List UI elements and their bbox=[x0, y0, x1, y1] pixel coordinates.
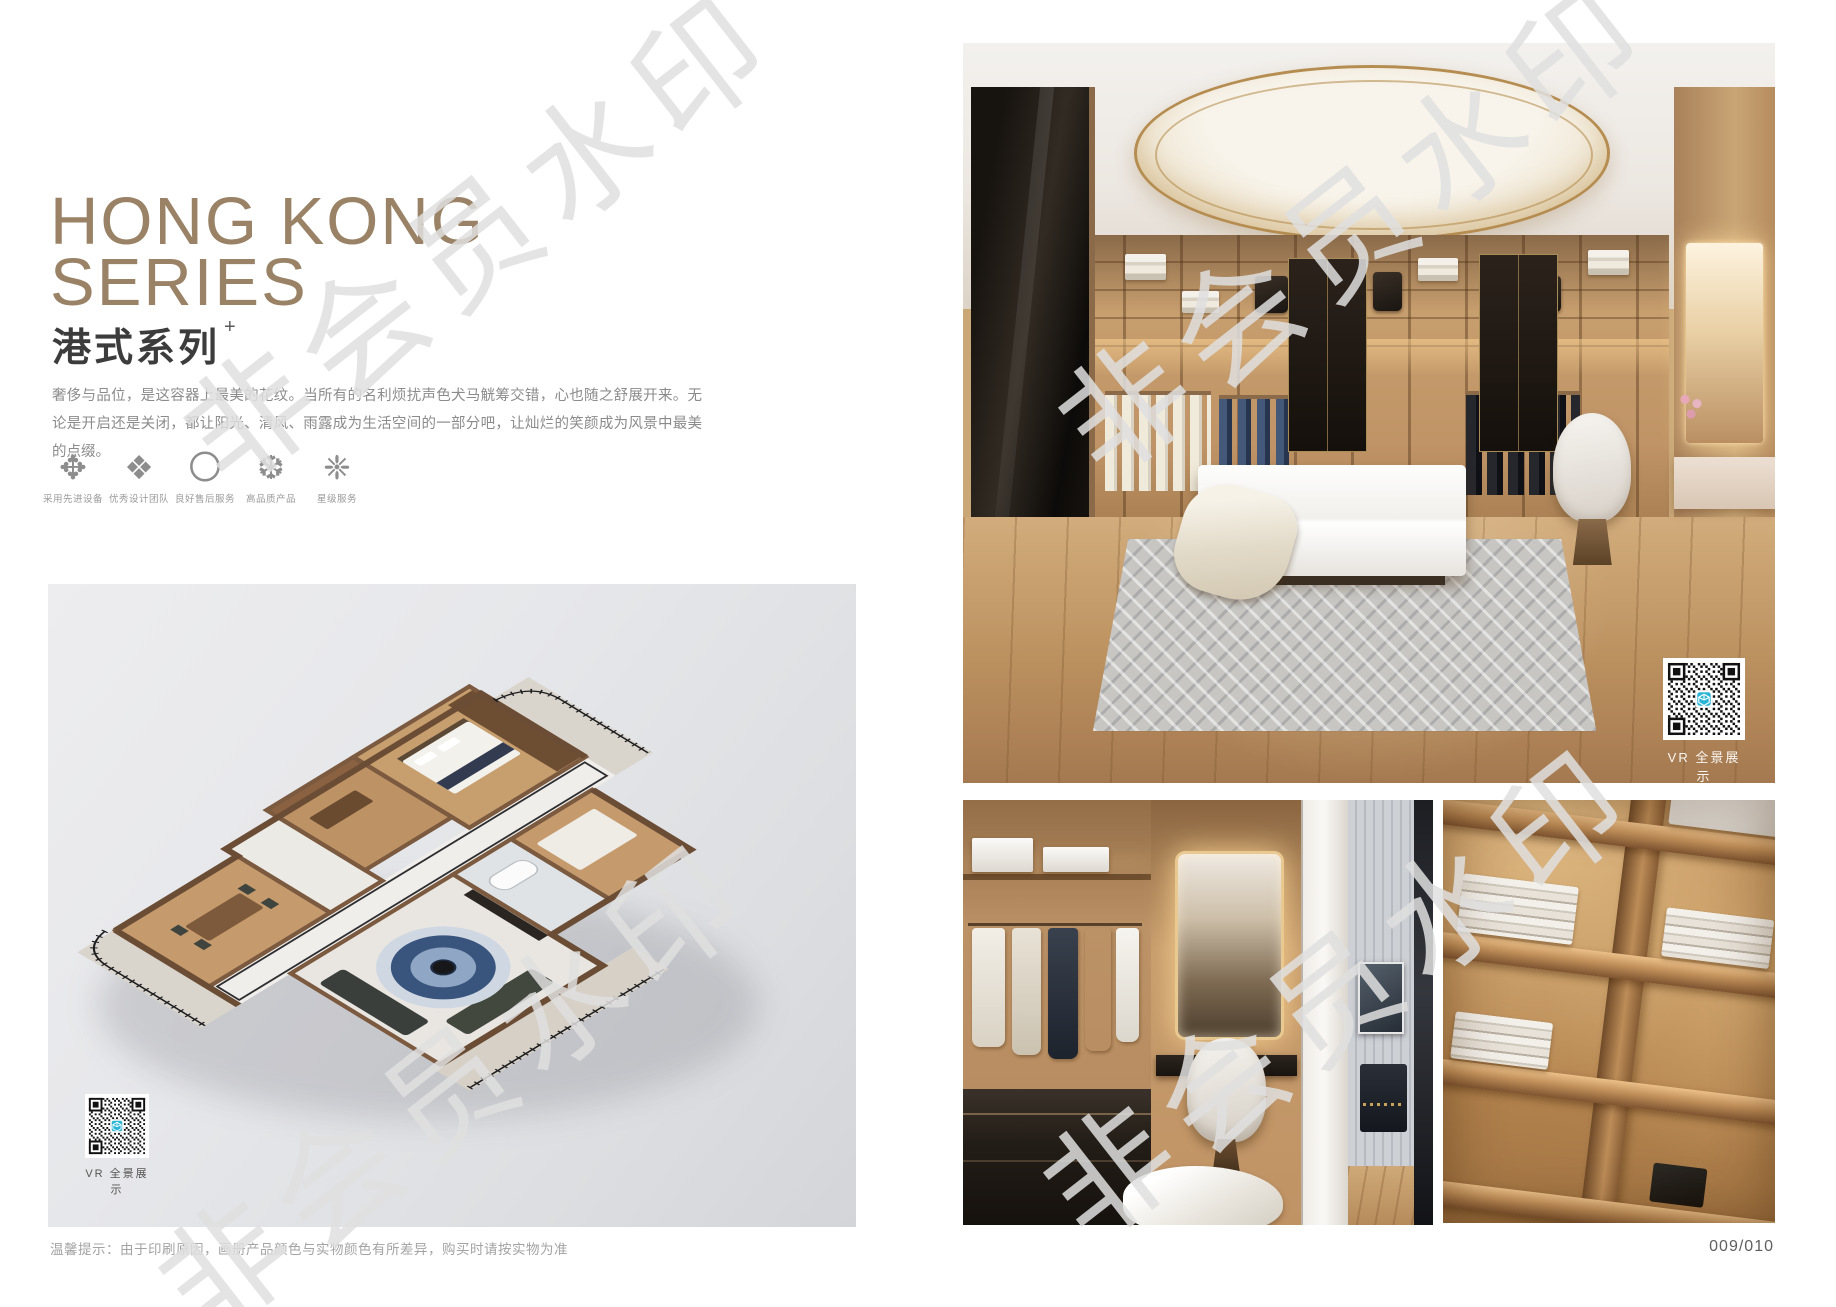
handbag bbox=[1255, 276, 1287, 313]
page-title: HONG KONGSERIES bbox=[50, 191, 485, 313]
sideboard bbox=[1360, 1064, 1407, 1132]
pink-flowers bbox=[1676, 391, 1706, 433]
catalog-page: HONG KONGSERIES 港式系列+ 奢侈与品位，是这容器上最美的花纹。当… bbox=[0, 0, 1836, 1307]
lighted-mirror bbox=[1175, 851, 1284, 1040]
top-shelf bbox=[963, 874, 1151, 880]
feature-item: 〇 良好售后服务 bbox=[172, 450, 238, 505]
feature-label: 高品质产品 bbox=[238, 491, 304, 505]
hanging-garment bbox=[1116, 928, 1140, 1043]
feature-item: ❖ 优秀设计团队 bbox=[106, 450, 172, 505]
storage-box bbox=[1043, 847, 1109, 873]
footer-disclaimer: 温馨提示：由于印刷原因，画册产品颜色与实物颜色有所差异，购买时请按实物为准 bbox=[50, 1238, 568, 1258]
photo-qr-block: VR 全景展示 bbox=[1663, 658, 1745, 783]
hanging-rod bbox=[968, 923, 1142, 926]
storage-box bbox=[972, 838, 1033, 872]
dressing-area-photo bbox=[963, 800, 1433, 1225]
floorplan-figure: VR 全景展示 bbox=[48, 584, 856, 1227]
feature-item: ✥ 采用先进设备 bbox=[40, 450, 106, 505]
flower-ornament-icon: ✥ bbox=[40, 450, 106, 486]
hanging-garment bbox=[1048, 928, 1079, 1060]
photo-vignette bbox=[1443, 800, 1775, 1223]
feature-label: 采用先进设备 bbox=[40, 491, 106, 505]
series-subtitle: 港式系列+ bbox=[52, 316, 239, 373]
subtitle-plus-mark: + bbox=[224, 316, 239, 338]
ring-icon: 〇 bbox=[172, 450, 238, 486]
handbag bbox=[1373, 272, 1402, 310]
snowflake-icon: ❆ bbox=[238, 450, 304, 486]
ceiling-ring bbox=[1134, 65, 1611, 241]
feature-item: ❆ 高品质产品 bbox=[238, 450, 304, 505]
subtitle-text: 港式系列 bbox=[52, 327, 220, 370]
isometric-floorplan bbox=[48, 584, 856, 1227]
feature-label: 良好售后服务 bbox=[172, 491, 238, 505]
hanging-garment bbox=[1012, 928, 1040, 1056]
white-chair bbox=[1179, 1038, 1273, 1183]
vr-label: VR 全景展示 bbox=[1663, 747, 1745, 783]
hanging-garment bbox=[1085, 928, 1111, 1051]
hanging-shirts bbox=[1105, 391, 1211, 491]
feature-item: ❈ 星级服务 bbox=[304, 450, 370, 505]
shelf-detail-photo bbox=[1443, 800, 1775, 1223]
vanity-counter bbox=[1674, 457, 1776, 509]
folded-clothes bbox=[1125, 254, 1166, 280]
title-line2: SERIES bbox=[50, 245, 308, 320]
feature-label: 优秀设计团队 bbox=[106, 491, 172, 505]
vr-label: VR 全景展示 bbox=[85, 1165, 149, 1197]
feature-label: 星级服务 bbox=[304, 491, 370, 505]
glass-cabinet bbox=[1288, 258, 1367, 452]
folded-clothes bbox=[1588, 250, 1629, 275]
glass-partition bbox=[1414, 800, 1433, 1225]
white-chair bbox=[1544, 413, 1641, 568]
floorplan-qr-block: VR 全景展示 bbox=[85, 1094, 149, 1197]
folded-clothes bbox=[1418, 258, 1459, 282]
hanging-garment bbox=[972, 928, 1005, 1047]
qr-code bbox=[85, 1094, 149, 1158]
diamond-knot-icon: ❖ bbox=[106, 450, 172, 486]
star-burst-icon: ❈ bbox=[304, 450, 370, 486]
white-pillar bbox=[1301, 800, 1352, 1225]
shelf-light-glow bbox=[1069, 339, 1670, 376]
folded-clothes bbox=[1182, 291, 1219, 313]
qr-code bbox=[1663, 658, 1745, 740]
wall-art bbox=[1358, 962, 1404, 1034]
feature-row: ✥ 采用先进设备 ❖ 优秀设计团队 〇 良好售后服务 ❆ 高品质产品 ❈ 星级服… bbox=[40, 450, 370, 505]
page-number: 009/010 bbox=[1709, 1238, 1774, 1256]
walkin-closet-photo: VR 全景展示 bbox=[963, 43, 1775, 783]
